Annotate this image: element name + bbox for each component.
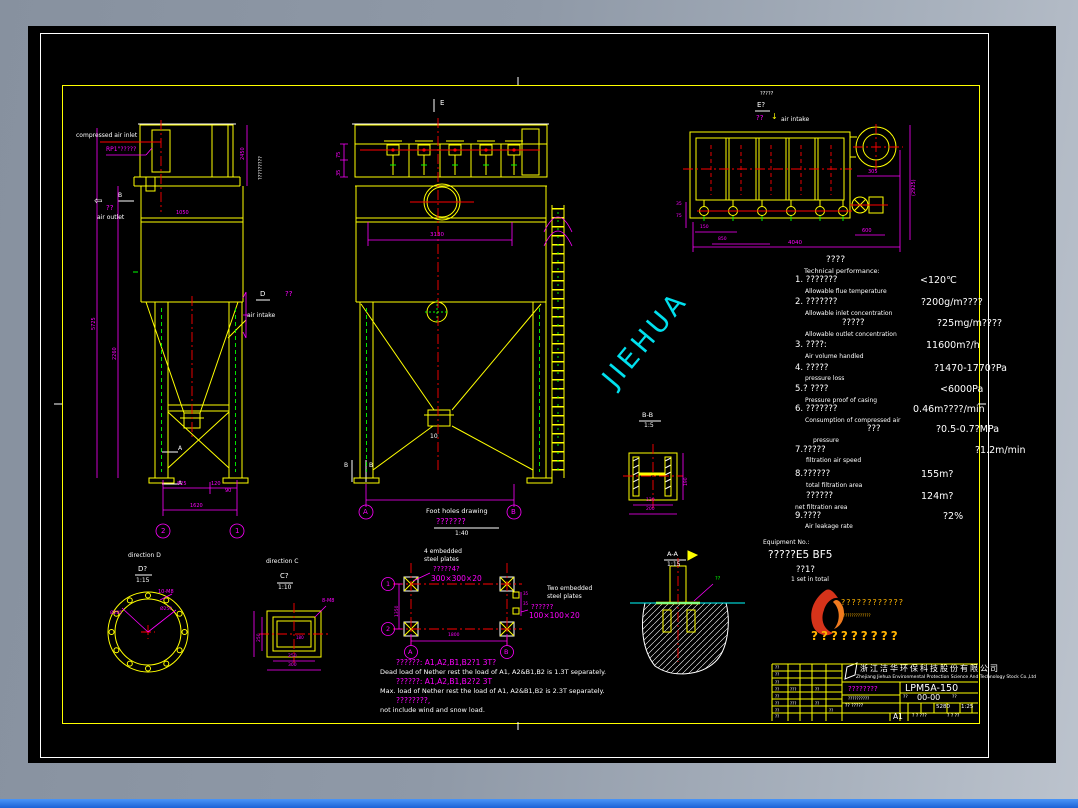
label-qq-plan: ?? bbox=[756, 115, 763, 122]
dim-35b: 35 bbox=[523, 602, 528, 606]
down-arrow-icon: ↓ bbox=[771, 113, 778, 121]
dim-600: 600 bbox=[862, 229, 872, 234]
tech-val: 155m? bbox=[921, 470, 953, 480]
note-3: ??????: A1,A2,B1,B2?2 3T bbox=[396, 678, 492, 686]
section-mark-b-mid2: B bbox=[369, 463, 373, 469]
label-qq-intake-mid: ?? bbox=[285, 291, 292, 298]
label-compressed-air-inlet: compressed air inlet bbox=[76, 133, 137, 139]
tech-cn: 6. ??????? bbox=[795, 405, 837, 414]
dim-850: 850 bbox=[718, 238, 727, 243]
detail-d-dia2: Ø285 bbox=[110, 612, 122, 617]
dim-1800: 1800 bbox=[448, 634, 459, 639]
tech-val: ?1470-1770?Pa bbox=[934, 364, 1007, 374]
note-5: ????????, bbox=[396, 697, 430, 705]
axis-circle-a: A bbox=[363, 509, 368, 516]
detail-d-bolts: 10-M8 bbox=[158, 590, 174, 595]
desktop-screenshot: JIEHUA compressed air inlet RP1"????? 24… bbox=[0, 0, 1078, 808]
note-6: not include wind and snow load. bbox=[380, 707, 485, 714]
section-bb-name: B-B bbox=[642, 412, 653, 419]
dim-35: 35 bbox=[337, 170, 342, 176]
dim-120: 120 bbox=[211, 482, 221, 487]
dim-2260: 2260 bbox=[113, 347, 118, 360]
dim-1050: 1050 bbox=[176, 211, 189, 216]
dim-90: 90 bbox=[225, 489, 231, 494]
detail-c-d250l: 250 bbox=[258, 633, 263, 642]
weight-value: 5280 bbox=[936, 705, 950, 711]
axis-circle-1: 1 bbox=[235, 528, 239, 535]
sheet-number: ? ? ?? bbox=[947, 715, 959, 720]
logo-line2: ????????? bbox=[811, 630, 901, 642]
tech-val: 0.46m????/min bbox=[913, 405, 985, 415]
section-bb-scale: 1:5 bbox=[644, 423, 654, 429]
plates2-cn: ?????? bbox=[531, 604, 553, 611]
detail-d-tag: D? bbox=[138, 566, 147, 573]
tech-val: <6000Pa bbox=[940, 385, 983, 395]
tb-cell: ?? bbox=[775, 695, 779, 699]
logo-caption: ????????????? bbox=[843, 614, 871, 618]
dim-2925: (2925) bbox=[912, 179, 917, 196]
equipment-label: Equipment No.: bbox=[763, 540, 809, 546]
tech-en: Consumption of compressed air bbox=[805, 418, 900, 424]
tech-val: ?2% bbox=[943, 512, 963, 522]
tech-cn: 8.?????? bbox=[795, 470, 830, 479]
axis-fb: B bbox=[504, 649, 508, 656]
detail-c-bolts: 8-M8 bbox=[322, 599, 334, 604]
tech-title-cn: ???? bbox=[826, 256, 845, 265]
label-10: 10 bbox=[430, 434, 438, 440]
tech-cn: 2. ??????? bbox=[795, 298, 837, 307]
dim-75: 75 bbox=[337, 152, 342, 158]
equipment-qty-en: 1 set in total bbox=[791, 577, 829, 583]
dim-2450: 2450 bbox=[241, 147, 246, 160]
plates2-en2: steel plates bbox=[547, 594, 582, 600]
foundation-scale: 1:40 bbox=[455, 531, 468, 537]
label-air-outlet: air outlet bbox=[97, 215, 124, 221]
tech-en: Allowable outlet concentration bbox=[805, 332, 897, 338]
tb-cell: ?? bbox=[815, 688, 819, 692]
taskbar[interactable] bbox=[0, 799, 1078, 808]
dim-305: 305 bbox=[868, 170, 878, 175]
foundation-title-cn: ??????? bbox=[436, 518, 466, 526]
tb-cell: ?? bbox=[775, 688, 779, 692]
detail-c-d180: 180 bbox=[296, 636, 304, 640]
tech-val: 124m? bbox=[921, 492, 953, 502]
tb-cell: ??? bbox=[790, 688, 796, 692]
tech-val: ?200g/m???? bbox=[921, 298, 983, 308]
detail-c-dir: direction C bbox=[266, 559, 298, 565]
plates4-en1: 4 embedded bbox=[424, 549, 462, 555]
dim-1620: 1620 bbox=[190, 504, 203, 509]
detail-d-dia1: Ø250 bbox=[160, 608, 172, 613]
axis-f2: 2 bbox=[386, 626, 390, 633]
dim-35a: 35 bbox=[523, 592, 528, 596]
plates4-en2: steel plates bbox=[424, 557, 459, 563]
detail-c-scale: 1:10 bbox=[278, 585, 291, 591]
tech-title-en: Technical performance: bbox=[804, 268, 880, 275]
equipment-no: ?????E5 BF5 bbox=[768, 550, 832, 561]
tb-cell: ?? bbox=[775, 702, 779, 706]
plates2-size: 100×100×20 bbox=[529, 612, 580, 620]
tb-cell: ?? bbox=[775, 715, 779, 719]
scale-value: 1:25 bbox=[961, 705, 973, 711]
tech-val: ?1.2m/min bbox=[975, 446, 1026, 456]
note-4: Max. load of Nether rest the load of A1,… bbox=[380, 688, 605, 695]
logo-line1: ???????????? bbox=[841, 599, 904, 607]
dim-75-plan: 75 bbox=[676, 215, 682, 220]
product-name-sub: ?????????? bbox=[848, 697, 869, 701]
tech-cn: ?????? bbox=[806, 492, 833, 501]
arrow-air-outlet: ⇦ bbox=[94, 197, 102, 207]
sheet-size: A1 bbox=[893, 713, 903, 721]
section-mark-b-left: B bbox=[118, 193, 122, 199]
dim-4040: 4040 bbox=[788, 241, 802, 247]
plates2-en1: Two embedded bbox=[547, 586, 592, 592]
sheets-total: ? ? ??? bbox=[912, 715, 927, 720]
dim-150: 150 bbox=[700, 226, 709, 231]
dim-35-plan: 35 bbox=[676, 203, 682, 208]
axis-circle-2: 2 bbox=[161, 528, 165, 535]
detail-c-tag: C? bbox=[280, 573, 289, 580]
detail-c-d250: 250 bbox=[288, 655, 297, 660]
label-rp1: RP1"????? bbox=[106, 147, 136, 153]
equipment-qty: ??1? bbox=[796, 566, 815, 575]
tech-val: ?0.5-0.7?MPa bbox=[936, 425, 999, 435]
tech-en: Air volume handled bbox=[805, 354, 864, 360]
company-name-en: Zhejiang Jiehua Environmental Protection… bbox=[856, 676, 1036, 681]
label-e2: E? bbox=[757, 102, 765, 109]
label-direction-e: ????? bbox=[760, 92, 773, 97]
company-name-cn: 浙江洁华环保科技股份有限公司 bbox=[860, 665, 1000, 673]
tech-en: total filtration area bbox=[806, 483, 862, 489]
axis-f1: 1 bbox=[386, 581, 390, 588]
section-mark-e: E bbox=[440, 100, 444, 107]
plates4-size: 300×300×20 bbox=[431, 575, 482, 583]
tb-cell: ?? bbox=[775, 709, 779, 713]
tech-en: Air leakage rate bbox=[805, 524, 853, 530]
tb-cell: ?? bbox=[829, 709, 833, 713]
tb-cell: ?? bbox=[775, 673, 779, 677]
tech-cn: 5.? ???? bbox=[795, 385, 828, 394]
dim-825: 825 bbox=[177, 482, 187, 487]
tb-cell: ??? bbox=[790, 702, 796, 706]
tech-val: 11600m?/h bbox=[926, 341, 980, 351]
material-mark: ?? ????? bbox=[845, 705, 863, 710]
section-mark-b-mid1: B bbox=[344, 463, 348, 469]
axis-circle-b: B bbox=[511, 509, 516, 516]
tb-cell: ?? bbox=[815, 702, 819, 706]
tech-en: Allowable inlet concentration bbox=[805, 311, 892, 317]
foundation-title-en: Foot holes drawing bbox=[426, 508, 488, 515]
section-aa-name: A-A bbox=[667, 551, 678, 558]
tech-cn: 9.???? bbox=[795, 512, 821, 521]
tech-cn: 3. ????: bbox=[795, 341, 827, 350]
dwg-no: 00-00 bbox=[917, 694, 940, 702]
magenta-dims bbox=[97, 125, 910, 670]
detail-d-scale: 1:15 bbox=[136, 578, 149, 584]
section-bb-d120: 120 bbox=[646, 499, 655, 504]
section-bb-d200: 200 bbox=[646, 508, 655, 513]
axis-fa: A bbox=[408, 649, 412, 656]
detail-d-dir: direction D bbox=[128, 553, 161, 559]
section-aa-scale: 1:15 bbox=[667, 562, 680, 568]
detail-c-d300: 300 bbox=[288, 664, 297, 669]
tech-cn: ????? bbox=[842, 319, 865, 328]
dim-3130: 3130 bbox=[430, 233, 444, 239]
tech-cn: 4. ????? bbox=[795, 364, 828, 373]
plates4-cn: ?????4? bbox=[433, 566, 460, 573]
tech-val: <120℃ bbox=[920, 276, 957, 286]
note-2: Dead load of Nether rest the load of A1,… bbox=[380, 669, 606, 676]
section-bb-d190: 190 bbox=[685, 477, 690, 486]
tech-en: filtration air speed bbox=[806, 458, 861, 464]
label-vert-note: ????????? bbox=[259, 156, 264, 180]
dwg-label: ?? bbox=[903, 696, 908, 701]
tech-cn: 7.????? bbox=[795, 446, 826, 455]
label-air-intake-mid: air intake bbox=[247, 313, 275, 319]
section-aa-note: ?? bbox=[715, 577, 720, 582]
tb-cell: ?? bbox=[775, 666, 779, 670]
dim-1350: 1350 bbox=[396, 606, 401, 617]
tech-cn: ??? bbox=[867, 425, 881, 434]
rev-label: ?? bbox=[952, 696, 957, 701]
dim-5725: 5725 bbox=[92, 317, 97, 330]
tech-en: Allowable flue temperature bbox=[805, 289, 887, 295]
tech-val: ?25mg/m???? bbox=[937, 319, 1002, 329]
label-air-intake-plan: air intake bbox=[781, 117, 809, 123]
tb-cell: ?? bbox=[775, 681, 779, 685]
tech-en: pressure loss bbox=[805, 376, 844, 382]
tech-en: pressure bbox=[813, 438, 839, 444]
section-mark-a1: A bbox=[178, 446, 182, 452]
label-qq-outlet: ?? bbox=[106, 205, 113, 212]
note-1: ??????: A1,A2,B1,B2?1 3T? bbox=[396, 659, 496, 667]
tech-cn: 1. ??????? bbox=[795, 276, 837, 285]
section-mark-d: D bbox=[260, 291, 265, 298]
product-name-cn: ???????? bbox=[848, 686, 878, 693]
